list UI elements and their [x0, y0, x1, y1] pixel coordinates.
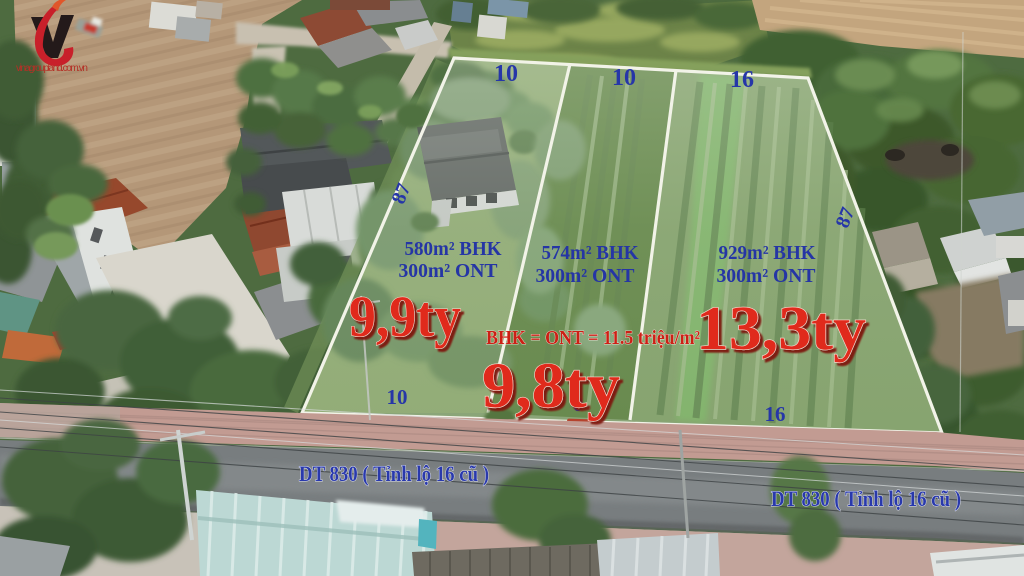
- svg-text:16: 16: [730, 67, 754, 93]
- svg-text:BHK = ONT = 11.5 triệu/m²: BHK = ONT = 11.5 triệu/m²: [486, 327, 700, 349]
- svg-text:574m² BHK: 574m² BHK: [542, 242, 639, 264]
- svg-text:300m² ONT: 300m² ONT: [399, 260, 499, 282]
- svg-text:9,8ty: 9,8ty: [482, 350, 620, 422]
- svg-text:929m² BHK: 929m² BHK: [719, 242, 816, 264]
- svg-text:9,9ty: 9,9ty: [349, 284, 461, 349]
- svg-text:vinagroupland.com.vn: vinagroupland.com.vn: [16, 63, 88, 74]
- svg-text:DT 830 ( Tỉnh lộ 16 cũ ): DT 830 ( Tỉnh lộ 16 cũ ): [771, 486, 961, 511]
- svg-text:10: 10: [612, 65, 636, 91]
- svg-text:580m² BHK: 580m² BHK: [405, 238, 502, 260]
- svg-text:300m² ONT: 300m² ONT: [717, 265, 817, 287]
- svg-text:13,3ty: 13,3ty: [696, 295, 866, 363]
- svg-text:16: 16: [765, 402, 786, 426]
- svg-text:300m² ONT: 300m² ONT: [536, 265, 636, 287]
- svg-text:10: 10: [494, 61, 518, 87]
- svg-text:DT 830 ( Tỉnh lộ 16 cũ ): DT 830 ( Tỉnh lộ 16 cũ ): [299, 461, 489, 486]
- svg-text:10: 10: [387, 385, 408, 409]
